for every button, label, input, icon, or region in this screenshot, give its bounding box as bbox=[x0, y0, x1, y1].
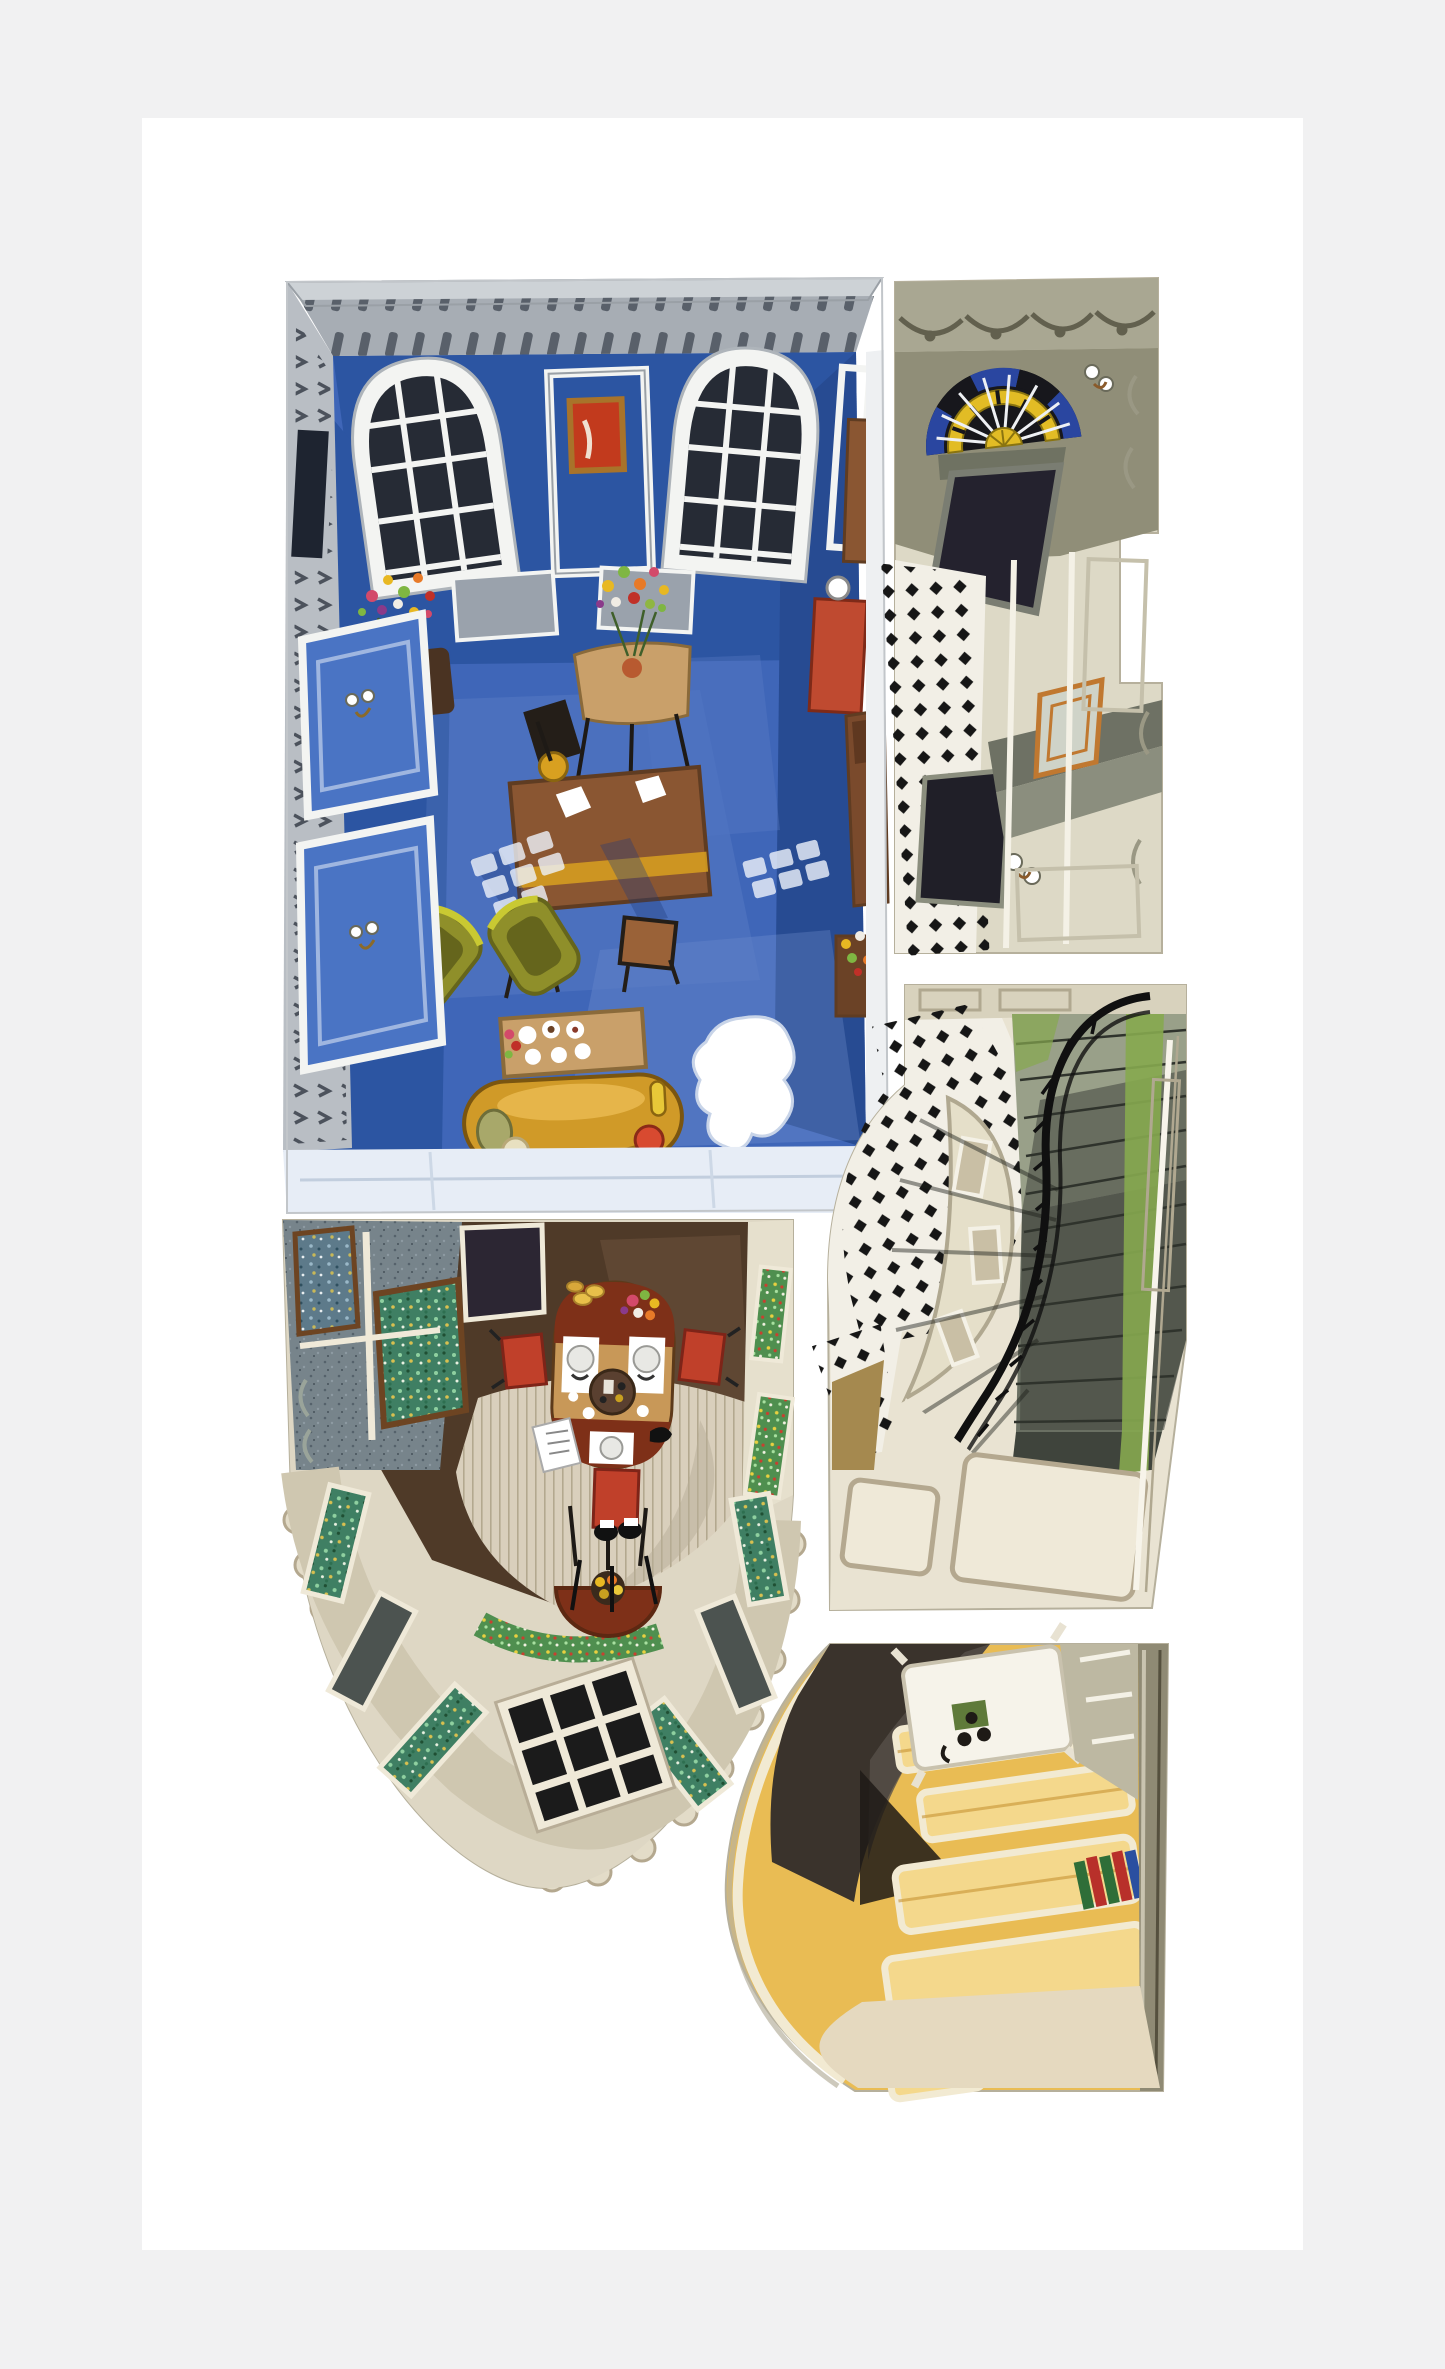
red-cabinet bbox=[809, 599, 867, 714]
floor-panel-small bbox=[841, 1479, 939, 1575]
chair-right bbox=[620, 917, 677, 968]
left-wall-panels bbox=[300, 614, 442, 1070]
chair bbox=[679, 1330, 725, 1385]
chair bbox=[501, 1334, 546, 1388]
stained-glass-small bbox=[295, 1228, 358, 1334]
console-left bbox=[453, 572, 557, 641]
sconce bbox=[827, 577, 849, 599]
desk-lamp bbox=[538, 751, 568, 781]
screenshot-stage bbox=[0, 0, 1445, 2369]
drawing-room-panel bbox=[283, 278, 888, 1213]
framed-painting bbox=[570, 399, 624, 471]
dining-right-wall bbox=[742, 1220, 793, 1520]
left-niche bbox=[289, 427, 332, 561]
bolster bbox=[650, 1081, 666, 1116]
coffee-table bbox=[500, 1009, 646, 1077]
sheepskin-rug bbox=[693, 1017, 794, 1149]
entrance-hall-panel bbox=[881, 278, 1162, 956]
kitchen-passage-panel bbox=[726, 1624, 1169, 2099]
dining-room-panel bbox=[283, 1220, 805, 1891]
stained-glass-large bbox=[376, 1280, 466, 1426]
illustration bbox=[0, 0, 1445, 2369]
dark-opening bbox=[462, 1225, 544, 1320]
floor-panel-large bbox=[951, 1453, 1147, 1600]
